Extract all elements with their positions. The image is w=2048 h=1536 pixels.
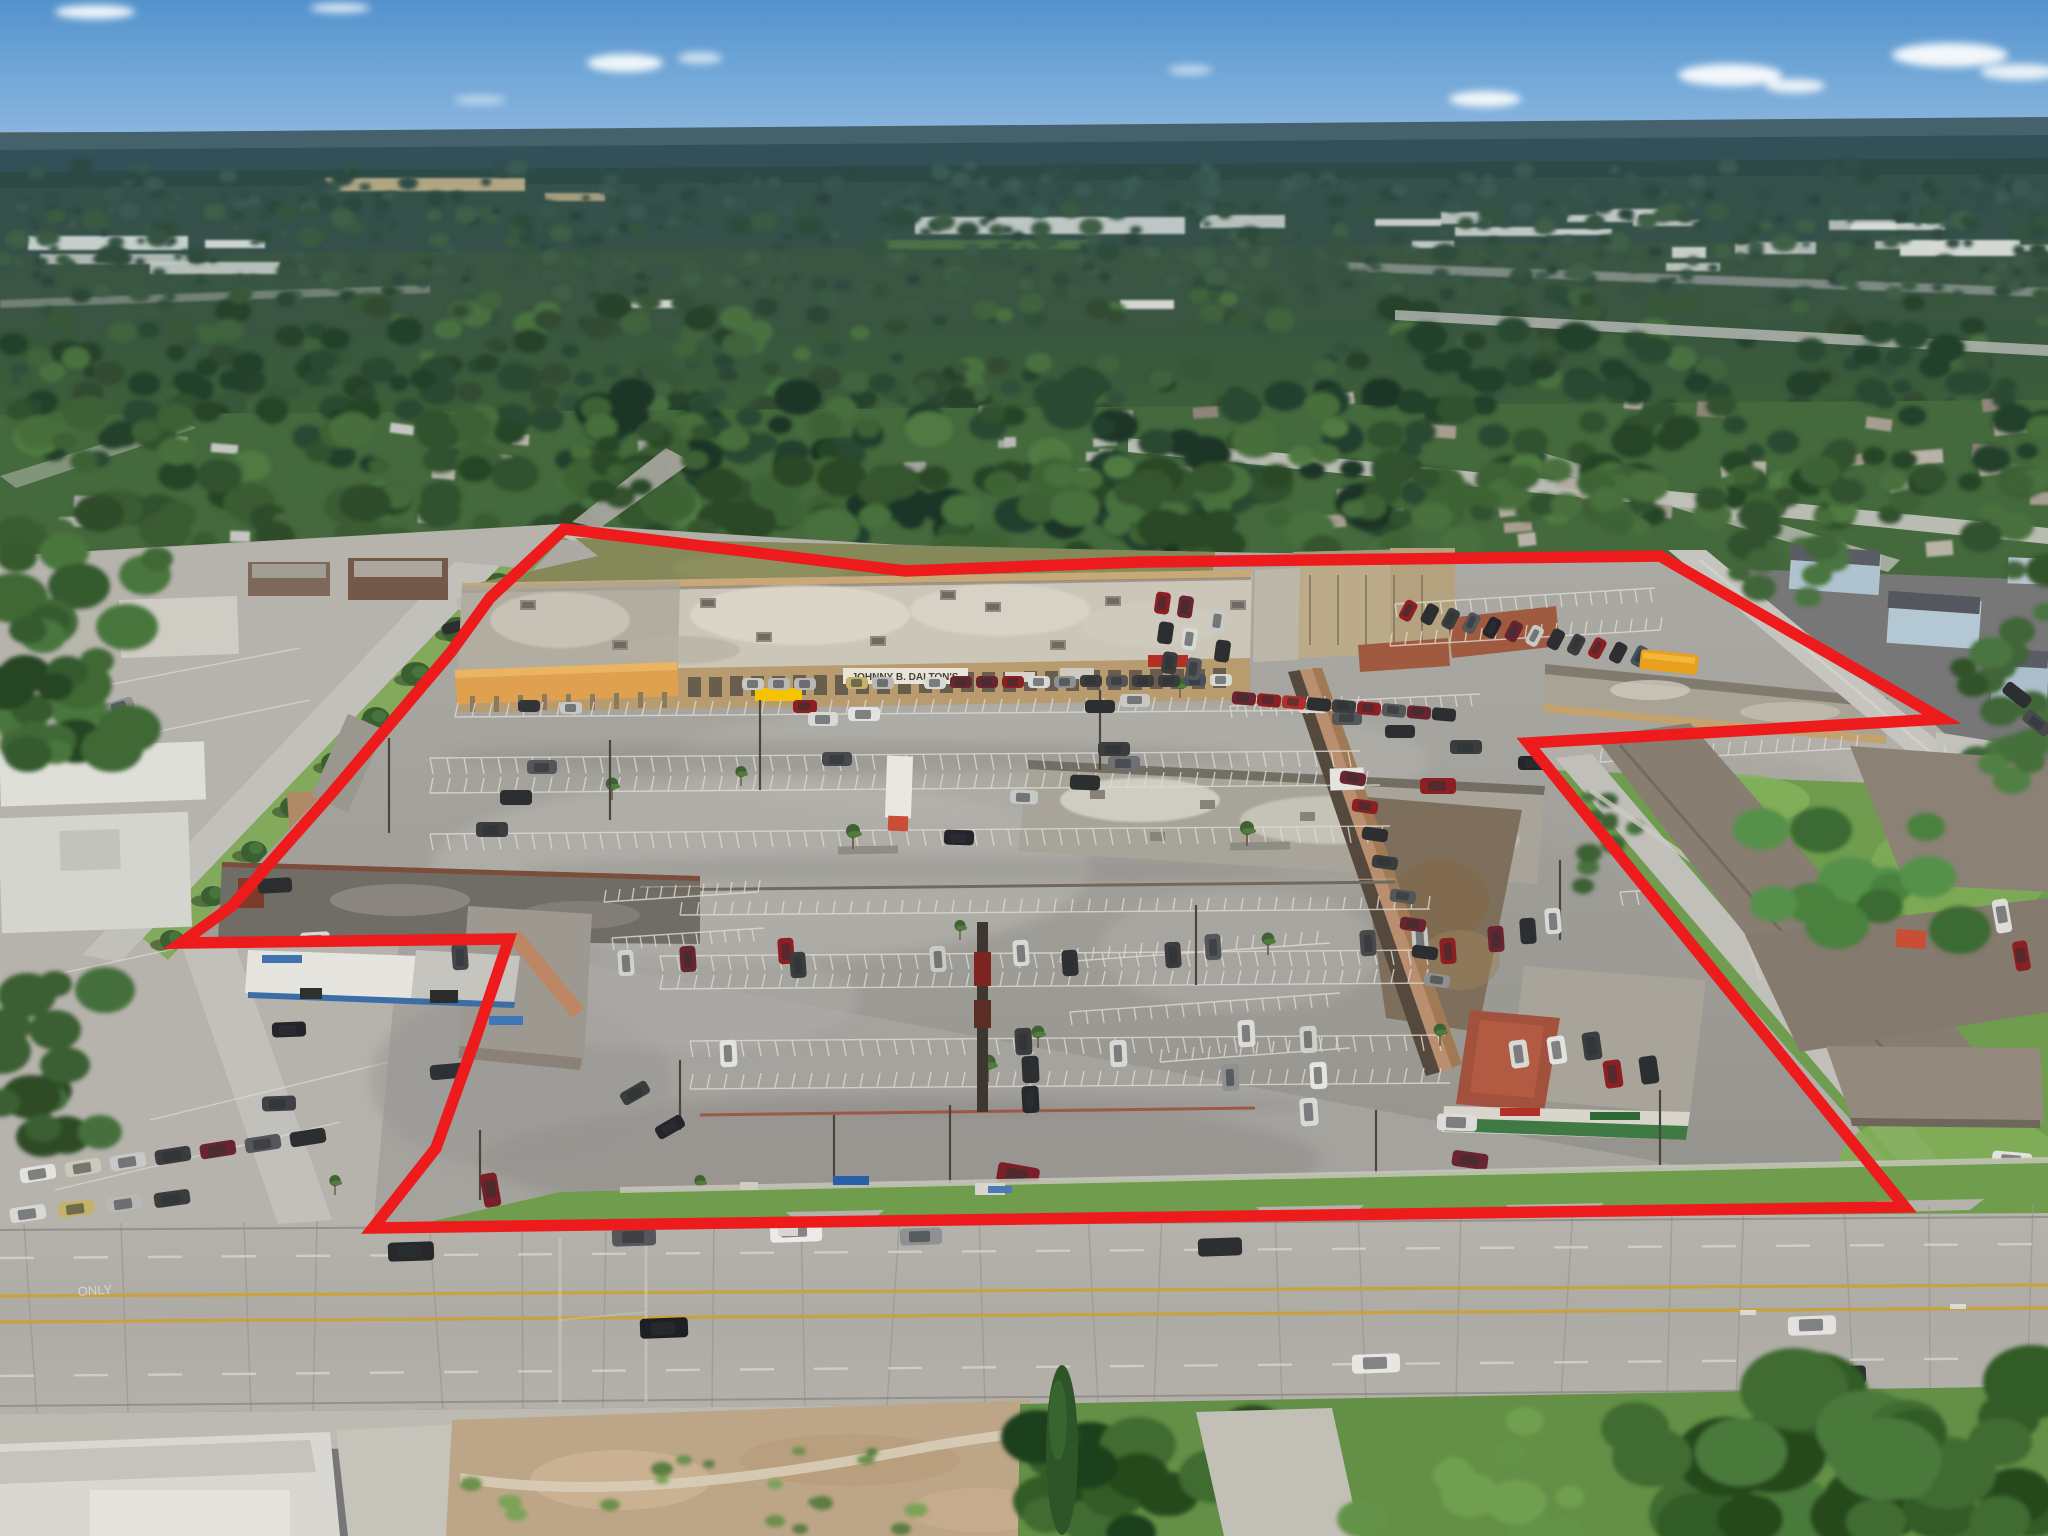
svg-text:ONLY: ONLY (77, 1282, 113, 1299)
